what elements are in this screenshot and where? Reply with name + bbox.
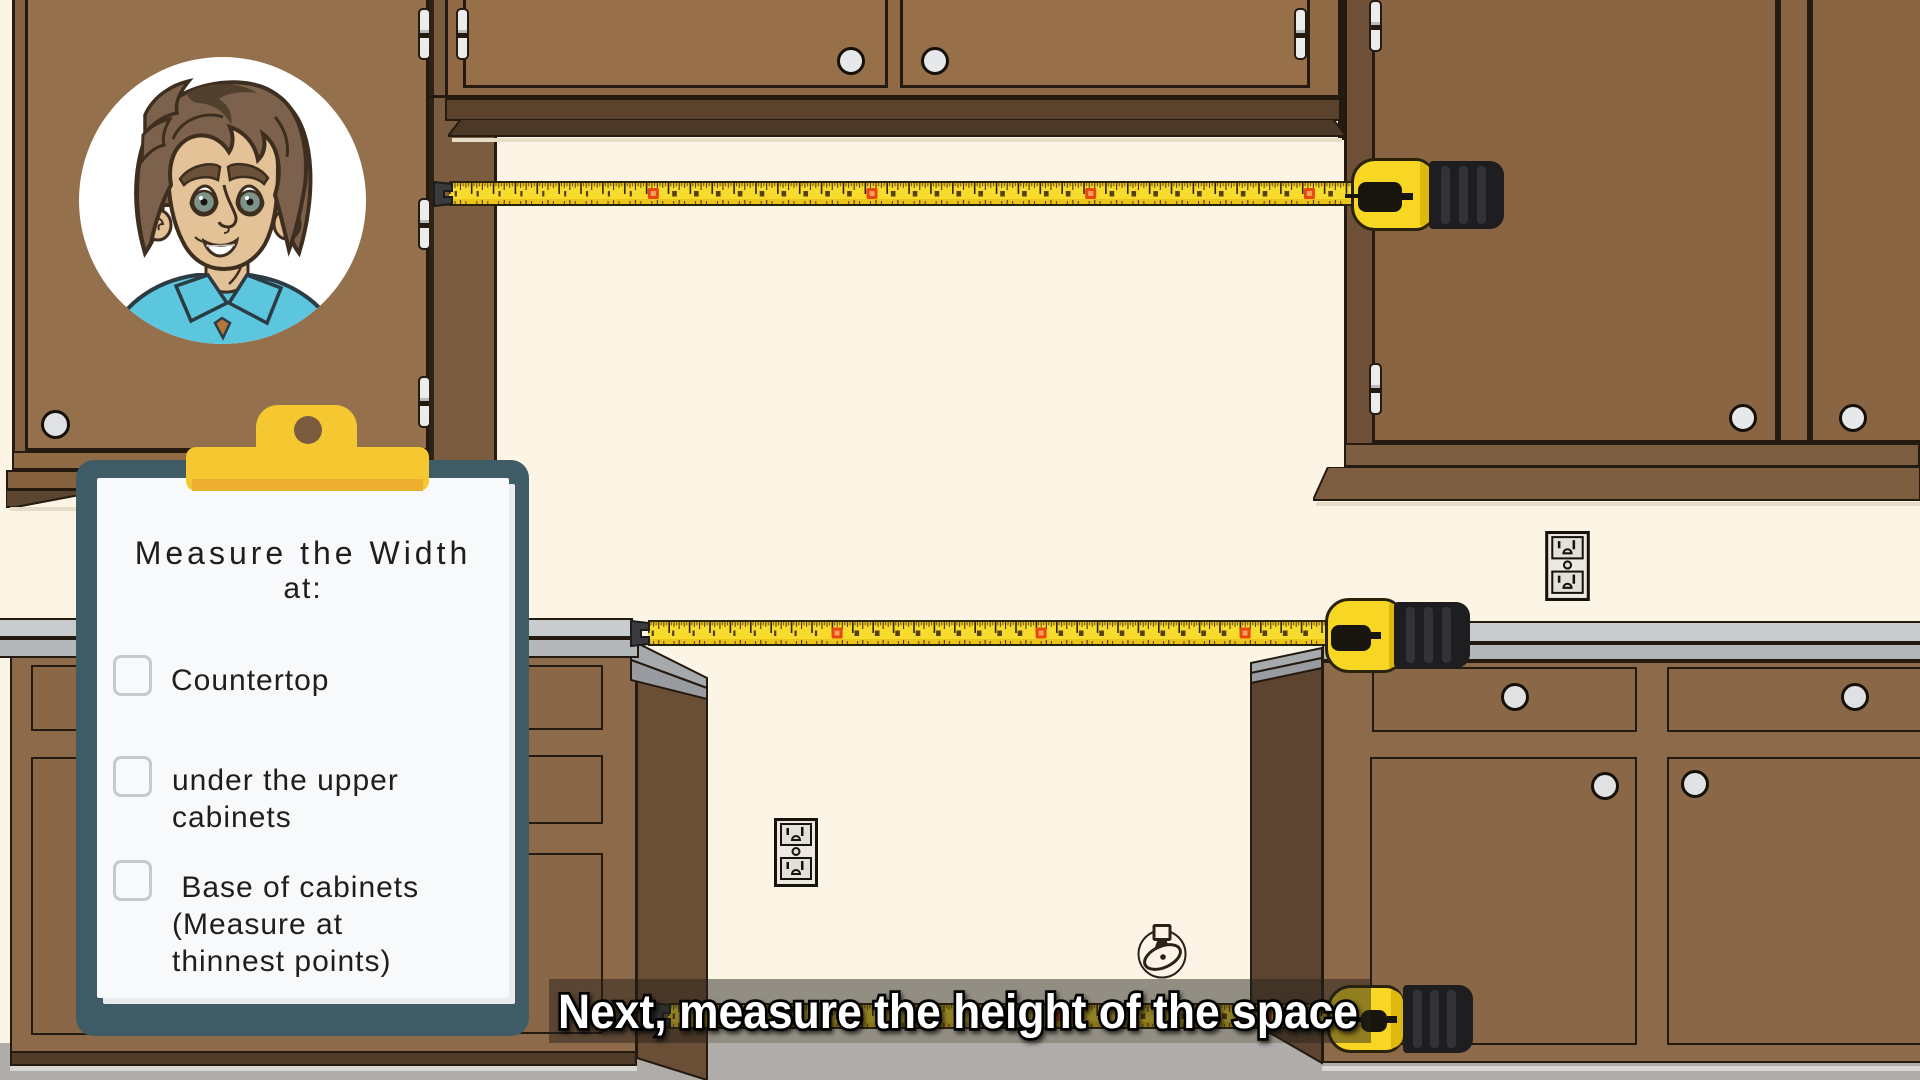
svg-text:Next, measure the height of th: Next, measure the height of the space: [558, 986, 1358, 1039]
